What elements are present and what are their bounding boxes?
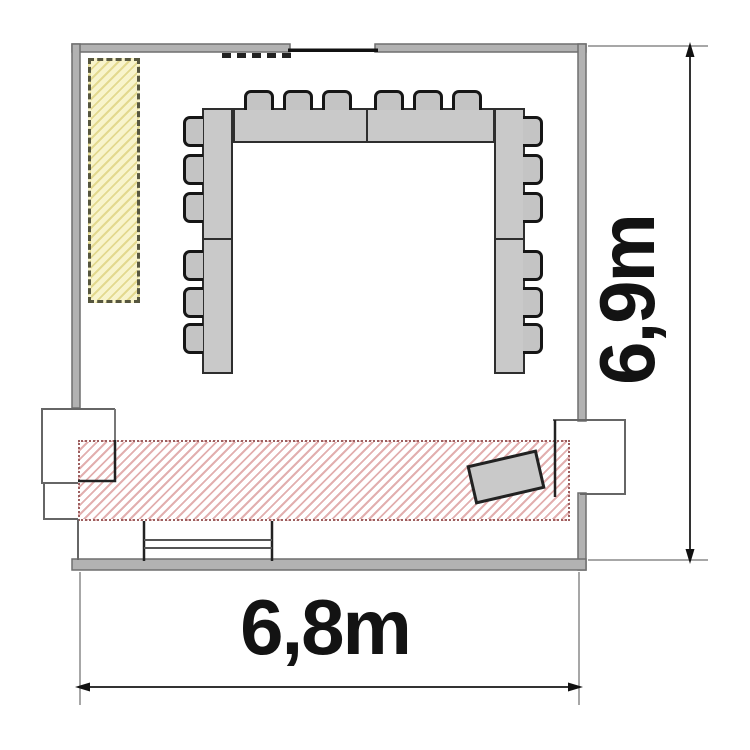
u-table-top (233, 108, 495, 143)
top-wall-left (72, 44, 290, 52)
chair (283, 90, 313, 110)
table-seam (203, 238, 232, 240)
left-wall (72, 44, 80, 408)
chair (322, 90, 352, 110)
chair (523, 116, 543, 147)
chair (523, 323, 543, 354)
u-table-left (202, 108, 233, 374)
arrow-up-icon (686, 42, 695, 57)
chair (452, 90, 482, 110)
chair (523, 287, 543, 318)
chair (183, 323, 203, 354)
chair (413, 90, 443, 110)
chair (523, 250, 543, 281)
wall-ticks (222, 53, 291, 58)
chair (183, 250, 203, 281)
top-wall-right (375, 44, 586, 52)
chair (244, 90, 274, 110)
table-seam (495, 238, 524, 240)
left-bay-outline (42, 409, 115, 560)
chair (523, 154, 543, 185)
door-opening-line (288, 49, 378, 53)
width-dimension-label: 6,8m (175, 585, 475, 669)
chair (183, 154, 203, 185)
u-table-right (494, 108, 525, 374)
height-dimension-label: 6,9m (587, 160, 667, 440)
chair (374, 90, 404, 110)
window-symbol (144, 521, 272, 561)
arrow-right-icon (568, 683, 583, 692)
floor-plan: 6,9m 6,8m (0, 0, 750, 750)
table-seam (366, 109, 368, 142)
wall-edges-over-hatch (78, 420, 555, 497)
chair (523, 192, 543, 223)
arrow-left-icon (75, 683, 90, 692)
bottom-wall (72, 559, 586, 570)
chair (183, 287, 203, 318)
arrow-down-icon (686, 549, 695, 564)
chair (183, 116, 203, 147)
chair (183, 192, 203, 223)
